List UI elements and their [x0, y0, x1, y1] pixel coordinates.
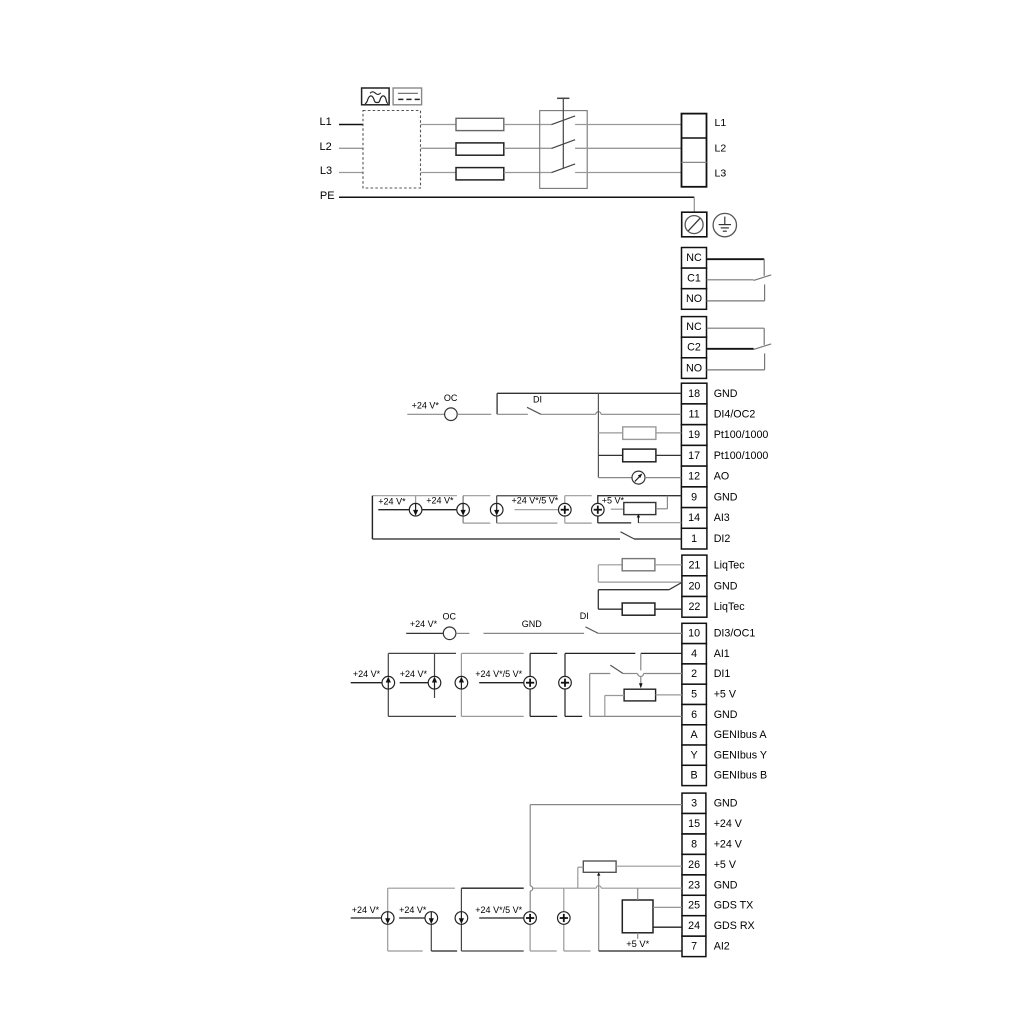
svg-text:26: 26	[688, 859, 700, 871]
svg-text:+5 V: +5 V	[714, 689, 737, 701]
svg-text:NC: NC	[686, 252, 702, 264]
svg-text:GND: GND	[714, 491, 738, 503]
svg-text:25: 25	[688, 900, 700, 912]
svg-text:L1: L1	[320, 116, 332, 128]
svg-text:Pt100/1000: Pt100/1000	[714, 429, 769, 441]
svg-text:C1: C1	[687, 273, 701, 285]
svg-text:GND: GND	[714, 580, 738, 592]
svg-text:L2: L2	[320, 141, 332, 153]
svg-text:AI3: AI3	[714, 512, 730, 524]
svg-text:+24 V*: +24 V*	[426, 496, 454, 506]
svg-text:GND: GND	[714, 798, 738, 810]
svg-text:+24 V*: +24 V*	[399, 905, 427, 915]
svg-text:DI1: DI1	[714, 668, 731, 680]
svg-text:4: 4	[691, 648, 697, 660]
svg-text:B: B	[691, 770, 698, 782]
svg-text:OC: OC	[444, 393, 458, 403]
svg-text:GENIbus A: GENIbus A	[714, 729, 768, 741]
svg-text:DI: DI	[580, 611, 589, 621]
svg-text:DI3/OC1: DI3/OC1	[714, 628, 756, 640]
svg-text:Y: Y	[691, 749, 698, 761]
svg-text:15: 15	[688, 818, 700, 830]
svg-text:Pt100/1000: Pt100/1000	[714, 450, 769, 462]
svg-text:+24 V*: +24 V*	[378, 496, 406, 506]
svg-text:1: 1	[691, 533, 697, 545]
svg-text:6: 6	[691, 709, 697, 721]
svg-text:DI2: DI2	[714, 533, 731, 545]
svg-text:LiqTec: LiqTec	[714, 601, 746, 613]
svg-text:+24 V: +24 V	[714, 838, 743, 850]
svg-text:11: 11	[689, 409, 700, 421]
svg-text:23: 23	[688, 879, 700, 891]
svg-text:14: 14	[688, 512, 700, 524]
svg-text:L1: L1	[715, 117, 727, 129]
svg-text:+24 V*: +24 V*	[412, 400, 440, 410]
svg-text:+24 V: +24 V	[714, 818, 743, 830]
svg-text:C2: C2	[687, 342, 701, 354]
svg-text:10: 10	[688, 628, 700, 640]
svg-text:NO: NO	[686, 293, 702, 305]
svg-text:L3: L3	[320, 165, 332, 177]
svg-text:2: 2	[691, 668, 697, 680]
svg-text:+24 V*/5 V*: +24 V*/5 V*	[512, 496, 559, 506]
svg-text:+5 V*: +5 V*	[602, 496, 625, 506]
svg-text:GENIbus Y: GENIbus Y	[714, 749, 767, 761]
svg-text:18: 18	[688, 388, 700, 400]
svg-text:3: 3	[691, 798, 697, 810]
svg-text:NO: NO	[686, 362, 702, 374]
svg-text:22: 22	[688, 601, 700, 613]
svg-text:GDS RX: GDS RX	[714, 920, 755, 932]
svg-text:GENIbus B: GENIbus B	[714, 770, 767, 782]
svg-text:7: 7	[691, 941, 697, 953]
svg-text:20: 20	[688, 580, 700, 592]
svg-text:17: 17	[688, 450, 700, 462]
svg-text:+24 V*/5 V*: +24 V*/5 V*	[475, 905, 522, 915]
svg-text:GND: GND	[522, 619, 543, 629]
svg-text:GND: GND	[714, 388, 738, 400]
svg-text:AI1: AI1	[714, 648, 730, 660]
svg-text:GDS TX: GDS TX	[714, 900, 754, 912]
svg-text:GND: GND	[714, 709, 738, 721]
svg-text:+5 V*: +5 V*	[626, 939, 649, 949]
svg-text:+24 V*: +24 V*	[400, 669, 428, 679]
svg-text:L3: L3	[715, 167, 727, 179]
svg-text:PE: PE	[320, 190, 335, 202]
svg-text:+24 V*: +24 V*	[353, 669, 381, 679]
svg-text:+24 V*/5 V*: +24 V*/5 V*	[475, 669, 522, 679]
svg-text:12: 12	[688, 471, 700, 483]
svg-text:AO: AO	[714, 471, 729, 483]
svg-text:8: 8	[691, 838, 697, 850]
svg-text:DI4/OC2: DI4/OC2	[714, 409, 756, 421]
svg-text:GND: GND	[714, 879, 738, 891]
svg-text:NC: NC	[686, 321, 702, 333]
svg-text:DI: DI	[533, 394, 542, 404]
svg-text:L2: L2	[715, 143, 727, 155]
svg-text:+24 V*: +24 V*	[410, 619, 438, 629]
svg-text:21: 21	[688, 560, 700, 572]
svg-text:LiqTec: LiqTec	[714, 560, 746, 572]
svg-text:24: 24	[688, 920, 700, 932]
svg-text:+24 V*: +24 V*	[352, 905, 380, 915]
svg-text:9: 9	[691, 491, 697, 503]
svg-text:AI2: AI2	[714, 941, 730, 953]
svg-text:OC: OC	[443, 611, 457, 621]
svg-text:5: 5	[691, 689, 697, 701]
svg-text:+5 V: +5 V	[714, 859, 737, 871]
svg-text:A: A	[691, 729, 699, 741]
svg-text:19: 19	[688, 429, 700, 441]
